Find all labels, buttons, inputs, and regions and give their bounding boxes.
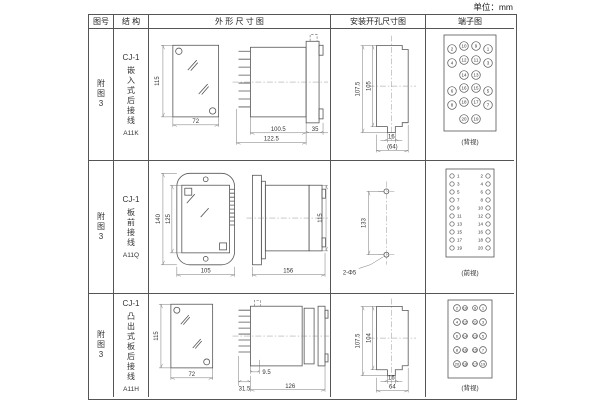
- outline-svg-a11h: 115 72 9.5 31.5: [149, 294, 330, 397]
- dim-label: 115: [318, 212, 324, 222]
- terminal-svg-a11k: 2 10 9 1 4 12 11 3 14 13 6 16 15 5: [426, 29, 514, 161]
- terminal-number: 4: [451, 60, 454, 65]
- dim-label: 126: [285, 384, 296, 390]
- terminal-number: 2: [480, 173, 483, 178]
- fig-number-text: 附图3: [96, 330, 107, 361]
- dim-label: 105: [367, 80, 373, 91]
- terminal-number: 18: [463, 361, 468, 366]
- dim-label: 115: [154, 331, 160, 341]
- outline-drawing-a11q: 140 125 105 156 115: [149, 161, 331, 294]
- structure-code: A11K: [123, 130, 138, 137]
- terminal-number: 17: [473, 361, 478, 366]
- side-view: 100.5 122.5 35: [233, 34, 328, 144]
- terminal-number: 20: [461, 116, 467, 121]
- model-label: CJ-1: [123, 53, 140, 62]
- model-label: CJ-1: [123, 195, 140, 204]
- terminal-svg-a11h: 2 10 9 1 4 12 11 3 6 14 13 5 8 16 15 7 2…: [426, 294, 514, 397]
- terminal-number: 18: [478, 237, 484, 242]
- terminal-number: 12: [463, 319, 468, 324]
- model-label: CJ-1: [123, 299, 140, 308]
- terminal-number: 3: [487, 60, 490, 65]
- terminal-number: 19: [481, 361, 486, 366]
- dim-label: 31.5: [239, 387, 251, 393]
- terminal-number: 11: [474, 57, 479, 62]
- fig-number-row1: 附图3: [89, 29, 114, 161]
- dimension-table: 图号 结 构 外 形 尺 寸 图 安装开孔尺寸图 端子图 附图3 CJ-1 嵌入…: [88, 14, 517, 400]
- terminal-number: 20: [478, 245, 484, 250]
- terminal-number: 14: [478, 221, 484, 226]
- header-structure: 结 构: [114, 15, 149, 29]
- view-label: (前视): [461, 268, 478, 277]
- terminal-number: 12: [478, 213, 484, 218]
- fig-number-row3: 附图3: [89, 294, 114, 397]
- dim-label: 35: [312, 126, 319, 132]
- terminal-number: 3: [482, 319, 485, 324]
- header-outline: 外 形 尺 寸 图: [149, 15, 331, 29]
- side-view: 9.5 31.5 126: [233, 300, 329, 393]
- terminal-number: 4: [456, 319, 459, 324]
- side-view: 156 115: [246, 175, 328, 276]
- structure-row3: CJ-1 凸出式板后接线 A11H: [114, 294, 149, 397]
- dim-label: 104: [367, 332, 373, 343]
- dim-label: 115: [155, 75, 161, 85]
- terminal-number: 9: [475, 43, 478, 48]
- terminal-number: 7: [482, 347, 485, 352]
- mounting-svg-a11h: 107.5 104 16 64: [331, 294, 425, 397]
- terminal-number: 19: [457, 245, 463, 250]
- terminal-number: 3: [457, 181, 460, 186]
- view-label: (背视): [461, 137, 478, 146]
- dim-label: 100.5: [271, 126, 287, 132]
- terminal-number: 19: [473, 116, 479, 121]
- structure-row1: CJ-1 嵌入式后接线 A11K: [114, 29, 149, 161]
- unit-label: 单位：mm: [473, 1, 513, 13]
- front-view: 140 125 105: [156, 173, 235, 276]
- outline-svg-a11k: 115 72 100.5 122.5 35: [149, 29, 330, 161]
- dim-label: 156: [283, 268, 294, 274]
- terminal-number: 18: [461, 99, 467, 104]
- fig-number-row2: 附图3: [89, 161, 114, 294]
- hole-spec-label: 2-Φ5: [343, 270, 357, 276]
- terminal-number: 10: [463, 305, 468, 310]
- terminal-number: 9: [457, 205, 460, 210]
- mounting-drawing-a11h: 107.5 104 16 64: [331, 294, 426, 397]
- terminal-drawing-a11k: 2 10 9 1 4 12 11 3 14 13 6 16 15 5: [426, 29, 514, 161]
- header-fig-no: 图号: [89, 15, 114, 29]
- terminal-drawing-a11q: 1 3 5 7 9 11 13 15 17 19 2 4 6 8 10 12 1…: [426, 161, 514, 294]
- terminal-number: 14: [463, 333, 468, 338]
- mounting-svg-a11k: 107.5 105 16 (64): [331, 29, 425, 161]
- mounting-drawing-a11q: 133 2-Φ5: [331, 161, 426, 294]
- terminal-number: 16: [463, 347, 468, 352]
- dim-label: 72: [188, 372, 195, 378]
- fig-number-text: 附图3: [96, 212, 107, 243]
- terminal-number: 8: [456, 347, 459, 352]
- terminal-number: 10: [478, 205, 484, 210]
- structure-type: 凸出式板后接线: [126, 312, 137, 382]
- terminal-number: 13: [457, 221, 463, 226]
- structure-type: 板前接线: [126, 208, 137, 248]
- terminal-number: 15: [473, 347, 478, 352]
- terminal-number: 2: [456, 305, 459, 310]
- terminal-number: 16: [478, 229, 484, 234]
- mounting-svg-a11q: 133 2-Φ5: [331, 161, 425, 294]
- terminal-number: 8: [480, 197, 483, 202]
- terminal-number: 6: [451, 88, 454, 93]
- terminal-number: 2: [451, 46, 454, 51]
- dim-label: 107.5: [356, 333, 362, 349]
- terminal-number: 12: [461, 57, 467, 62]
- structure-type: 嵌入式后接线: [126, 66, 137, 126]
- header-mounting: 安装开孔尺寸图: [331, 15, 426, 29]
- terminal-number: 5: [487, 88, 490, 93]
- structure-code: A11H: [123, 386, 139, 393]
- dim-label: 125: [166, 213, 172, 224]
- terminal-number: 5: [457, 189, 460, 194]
- terminal-number: 10: [461, 43, 467, 48]
- dim-label: 133: [362, 217, 368, 228]
- header-terminal: 端子图: [426, 15, 514, 29]
- front-view: 115 72: [154, 304, 213, 380]
- fig-number-text: 附图3: [96, 79, 107, 110]
- view-label: (背视): [461, 383, 478, 392]
- terminal-number: 13: [473, 72, 479, 77]
- structure-row2: CJ-1 板前接线 A11Q: [114, 161, 149, 294]
- terminal-number: 5: [482, 333, 485, 338]
- dim-label: 105: [201, 268, 212, 274]
- terminal-number: 13: [473, 333, 478, 338]
- terminal-number: 1: [487, 46, 490, 51]
- terminal-number: 20: [455, 361, 460, 366]
- terminal-number: 6: [480, 189, 483, 194]
- terminal-number: 11: [457, 213, 462, 218]
- terminal-number: 16: [461, 85, 467, 90]
- mounting-drawing-a11k: 107.5 105 16 (64): [331, 29, 426, 161]
- terminal-number: 8: [451, 102, 454, 107]
- terminal-number: 17: [457, 237, 463, 242]
- front-view: 115 72: [155, 45, 219, 127]
- terminal-number: 15: [473, 85, 479, 90]
- outline-drawing-a11k: 115 72 100.5 122.5 35: [149, 29, 331, 161]
- dim-label: 16: [388, 134, 395, 140]
- terminal-number: 14: [461, 72, 467, 77]
- terminal-svg-a11q: 1 3 5 7 9 11 13 15 17 19 2 4 6 8 10 12 1…: [426, 161, 514, 294]
- terminal-drawing-a11h: 2 10 9 1 4 12 11 3 6 14 13 5 8 16 15 7 2…: [426, 294, 514, 397]
- document-page: 单位：mm 图号 结 构 外 形 尺 寸 图 安装开孔尺寸图 端子图 附图3 C…: [0, 0, 600, 400]
- structure-code: A11Q: [123, 252, 139, 259]
- terminal-number: 1: [457, 173, 460, 178]
- terminal-number: 7: [487, 102, 490, 107]
- dim-label: (64): [387, 144, 398, 150]
- terminal-number: 1: [482, 305, 485, 310]
- terminal-number: 17: [473, 99, 479, 104]
- dim-label: 64: [389, 385, 396, 391]
- terminal-number: 15: [457, 229, 463, 234]
- dim-label: 16: [388, 376, 395, 382]
- terminal-number: 7: [457, 197, 460, 202]
- dim-label: 140: [156, 213, 162, 224]
- outline-drawing-a11h: 115 72 9.5 31.5: [149, 294, 331, 397]
- terminal-number: 4: [480, 181, 483, 186]
- dim-label: 9.5: [262, 370, 271, 376]
- outline-svg-a11q: 140 125 105 156 115: [149, 161, 330, 294]
- dim-label: 107.5: [356, 80, 362, 96]
- terminal-number: 6: [456, 333, 459, 338]
- dim-label: 122.5: [264, 136, 280, 142]
- dim-label: 72: [192, 118, 199, 124]
